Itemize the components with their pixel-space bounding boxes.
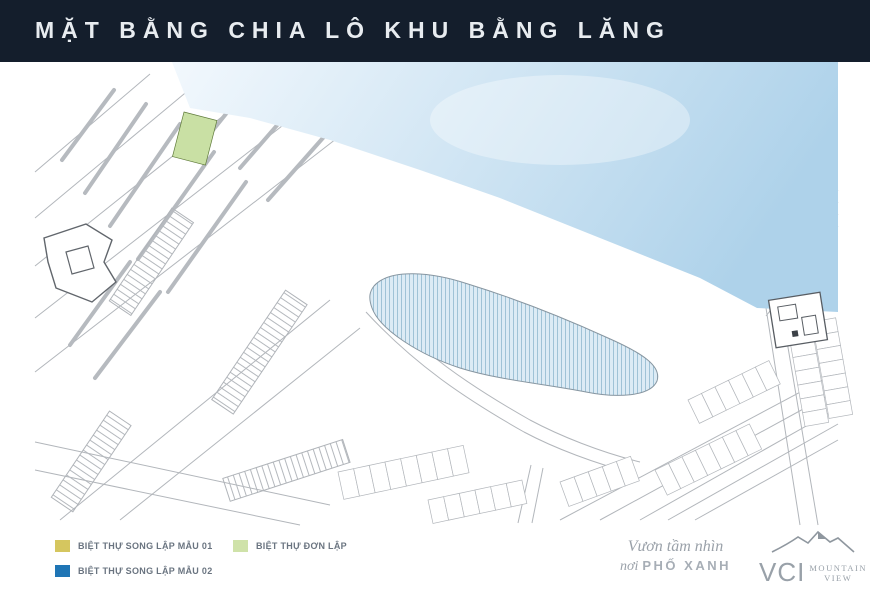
legend-swatch-blue <box>55 565 70 577</box>
vci-logo-sub1: MOUNTAIN <box>809 563 867 573</box>
slogan: Vươn tầm nhìn nơiPHỐ XANH <box>608 538 743 575</box>
legend-item-song-lap-01: BIỆT THỰ SONG LẬP MẪU 01 <box>55 540 213 552</box>
legend-swatch-yellow <box>55 540 70 552</box>
legend-label: BIỆT THỰ ĐƠN LẬP <box>256 541 347 551</box>
mountain-icon <box>768 530 858 554</box>
slogan-line1: Vươn tầm nhìn <box>608 538 743 556</box>
masterplan-page: { "header": { "title": "MẶT BẰNG CHIA LÔ… <box>0 0 870 615</box>
lot-strip <box>655 424 762 495</box>
legend-swatch-green <box>233 540 248 552</box>
vci-logo: VCI MOUNTAIN VIEW <box>758 530 868 588</box>
lot-strip <box>338 445 469 499</box>
legend-item-song-lap-02: BIỆT THỰ SONG LẬP MẪU 02 <box>55 565 213 577</box>
building-outline <box>44 224 116 302</box>
vci-logo-sub2: VIEW <box>809 573 867 583</box>
building-outline <box>769 292 828 348</box>
masterplan-map <box>0 0 870 615</box>
legend-label: BIỆT THỰ SONG LẬP MẪU 02 <box>78 566 213 576</box>
lake <box>370 274 658 396</box>
legend-label: BIỆT THỰ SONG LẬP MẪU 01 <box>78 541 213 551</box>
vci-logo-name: VCI <box>759 557 805 588</box>
slogan-brand: PHỐ XANH <box>642 558 731 573</box>
legend-item-don-lap: BIỆT THỰ ĐƠN LẬP <box>233 540 347 552</box>
lot-strip <box>428 480 527 523</box>
slogan-word: nơi <box>620 559 638 574</box>
lot-strip <box>688 361 780 424</box>
